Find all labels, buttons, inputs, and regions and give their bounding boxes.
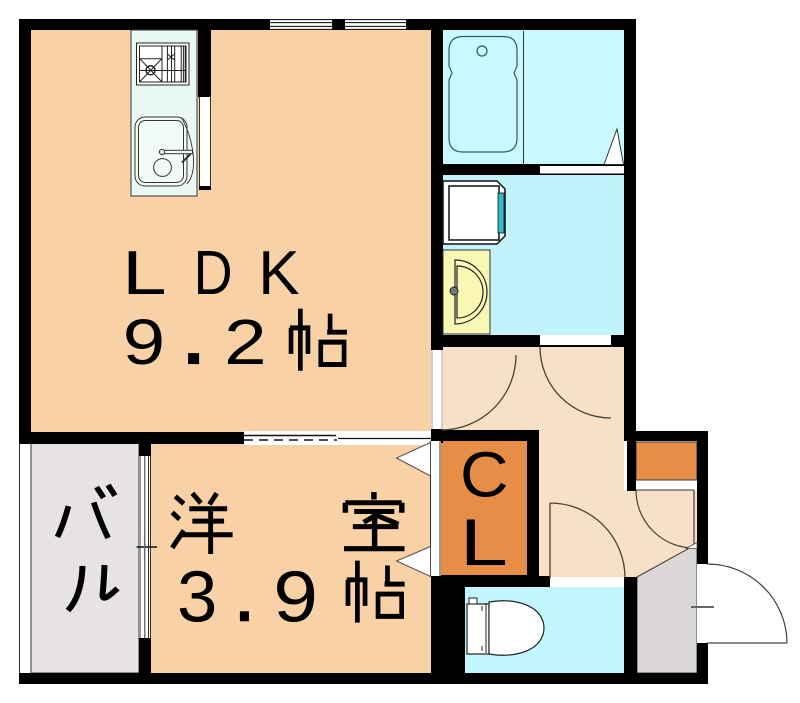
svg-text:9: 9 <box>273 557 318 638</box>
svg-text:9: 9 <box>123 306 166 378</box>
svg-text:L: L <box>122 239 166 308</box>
svg-text:C: C <box>460 439 509 510</box>
svg-text:D: D <box>194 239 233 308</box>
svg-text:K: K <box>258 239 299 308</box>
svg-text:3: 3 <box>177 557 217 638</box>
svg-text:2: 2 <box>224 306 267 378</box>
svg-text:L: L <box>460 507 508 580</box>
